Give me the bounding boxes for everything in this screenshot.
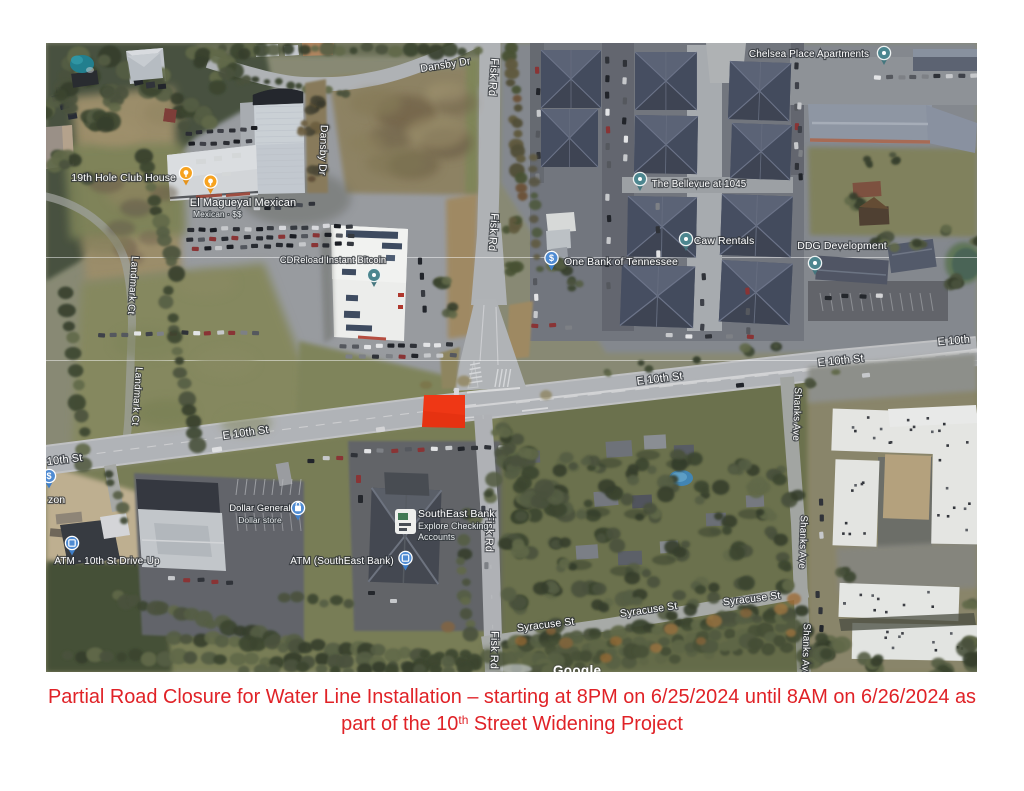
svg-text:Fisk Rd: Fisk Rd (488, 631, 501, 669)
svg-text:CDReload Instant Bitcoin: CDReload Instant Bitcoin (280, 255, 386, 265)
svg-text:ATM (SouthEast Bank): ATM (SouthEast Bank) (290, 556, 394, 567)
svg-text:19th Hole Club House: 19th Hole Club House (71, 172, 176, 184)
svg-text:$: $ (46, 471, 51, 481)
svg-text:Shanks Ave: Shanks Ave (799, 623, 812, 672)
svg-text:The Bellevue at 1045: The Bellevue at 1045 (652, 179, 747, 190)
svg-text:Dollar General: Dollar General (229, 503, 290, 513)
svg-text:SouthEast Bank: SouthEast Bank (418, 508, 495, 520)
svg-text:Accounts: Accounts (418, 532, 456, 542)
svg-text:Caw Rentals: Caw Rentals (694, 235, 755, 247)
svg-text:DDG Development: DDG Development (797, 240, 887, 252)
svg-text:zon: zon (48, 494, 65, 506)
svg-text:Chelsea Place Apartments: Chelsea Place Apartments (749, 49, 869, 60)
svg-text:Mexican · $$: Mexican · $$ (193, 209, 242, 219)
svg-text:$: $ (549, 253, 554, 263)
svg-text:Shanks Ave: Shanks Ave (790, 387, 803, 441)
svg-text:One Bank of Tennessee: One Bank of Tennessee (564, 256, 678, 268)
svg-text:ATM - 10th St Drive-Up: ATM - 10th St Drive-Up (54, 556, 160, 567)
svg-text:Dansby Dr: Dansby Dr (316, 125, 330, 176)
svg-text:Shanks Ave: Shanks Ave (796, 515, 809, 569)
svg-text:Explore Checking: Explore Checking (418, 521, 489, 531)
svg-text:Dollar store: Dollar store (238, 515, 282, 525)
svg-text:Google: Google (553, 663, 601, 672)
svg-text:El Magueyal Mexican: El Magueyal Mexican (190, 197, 296, 209)
